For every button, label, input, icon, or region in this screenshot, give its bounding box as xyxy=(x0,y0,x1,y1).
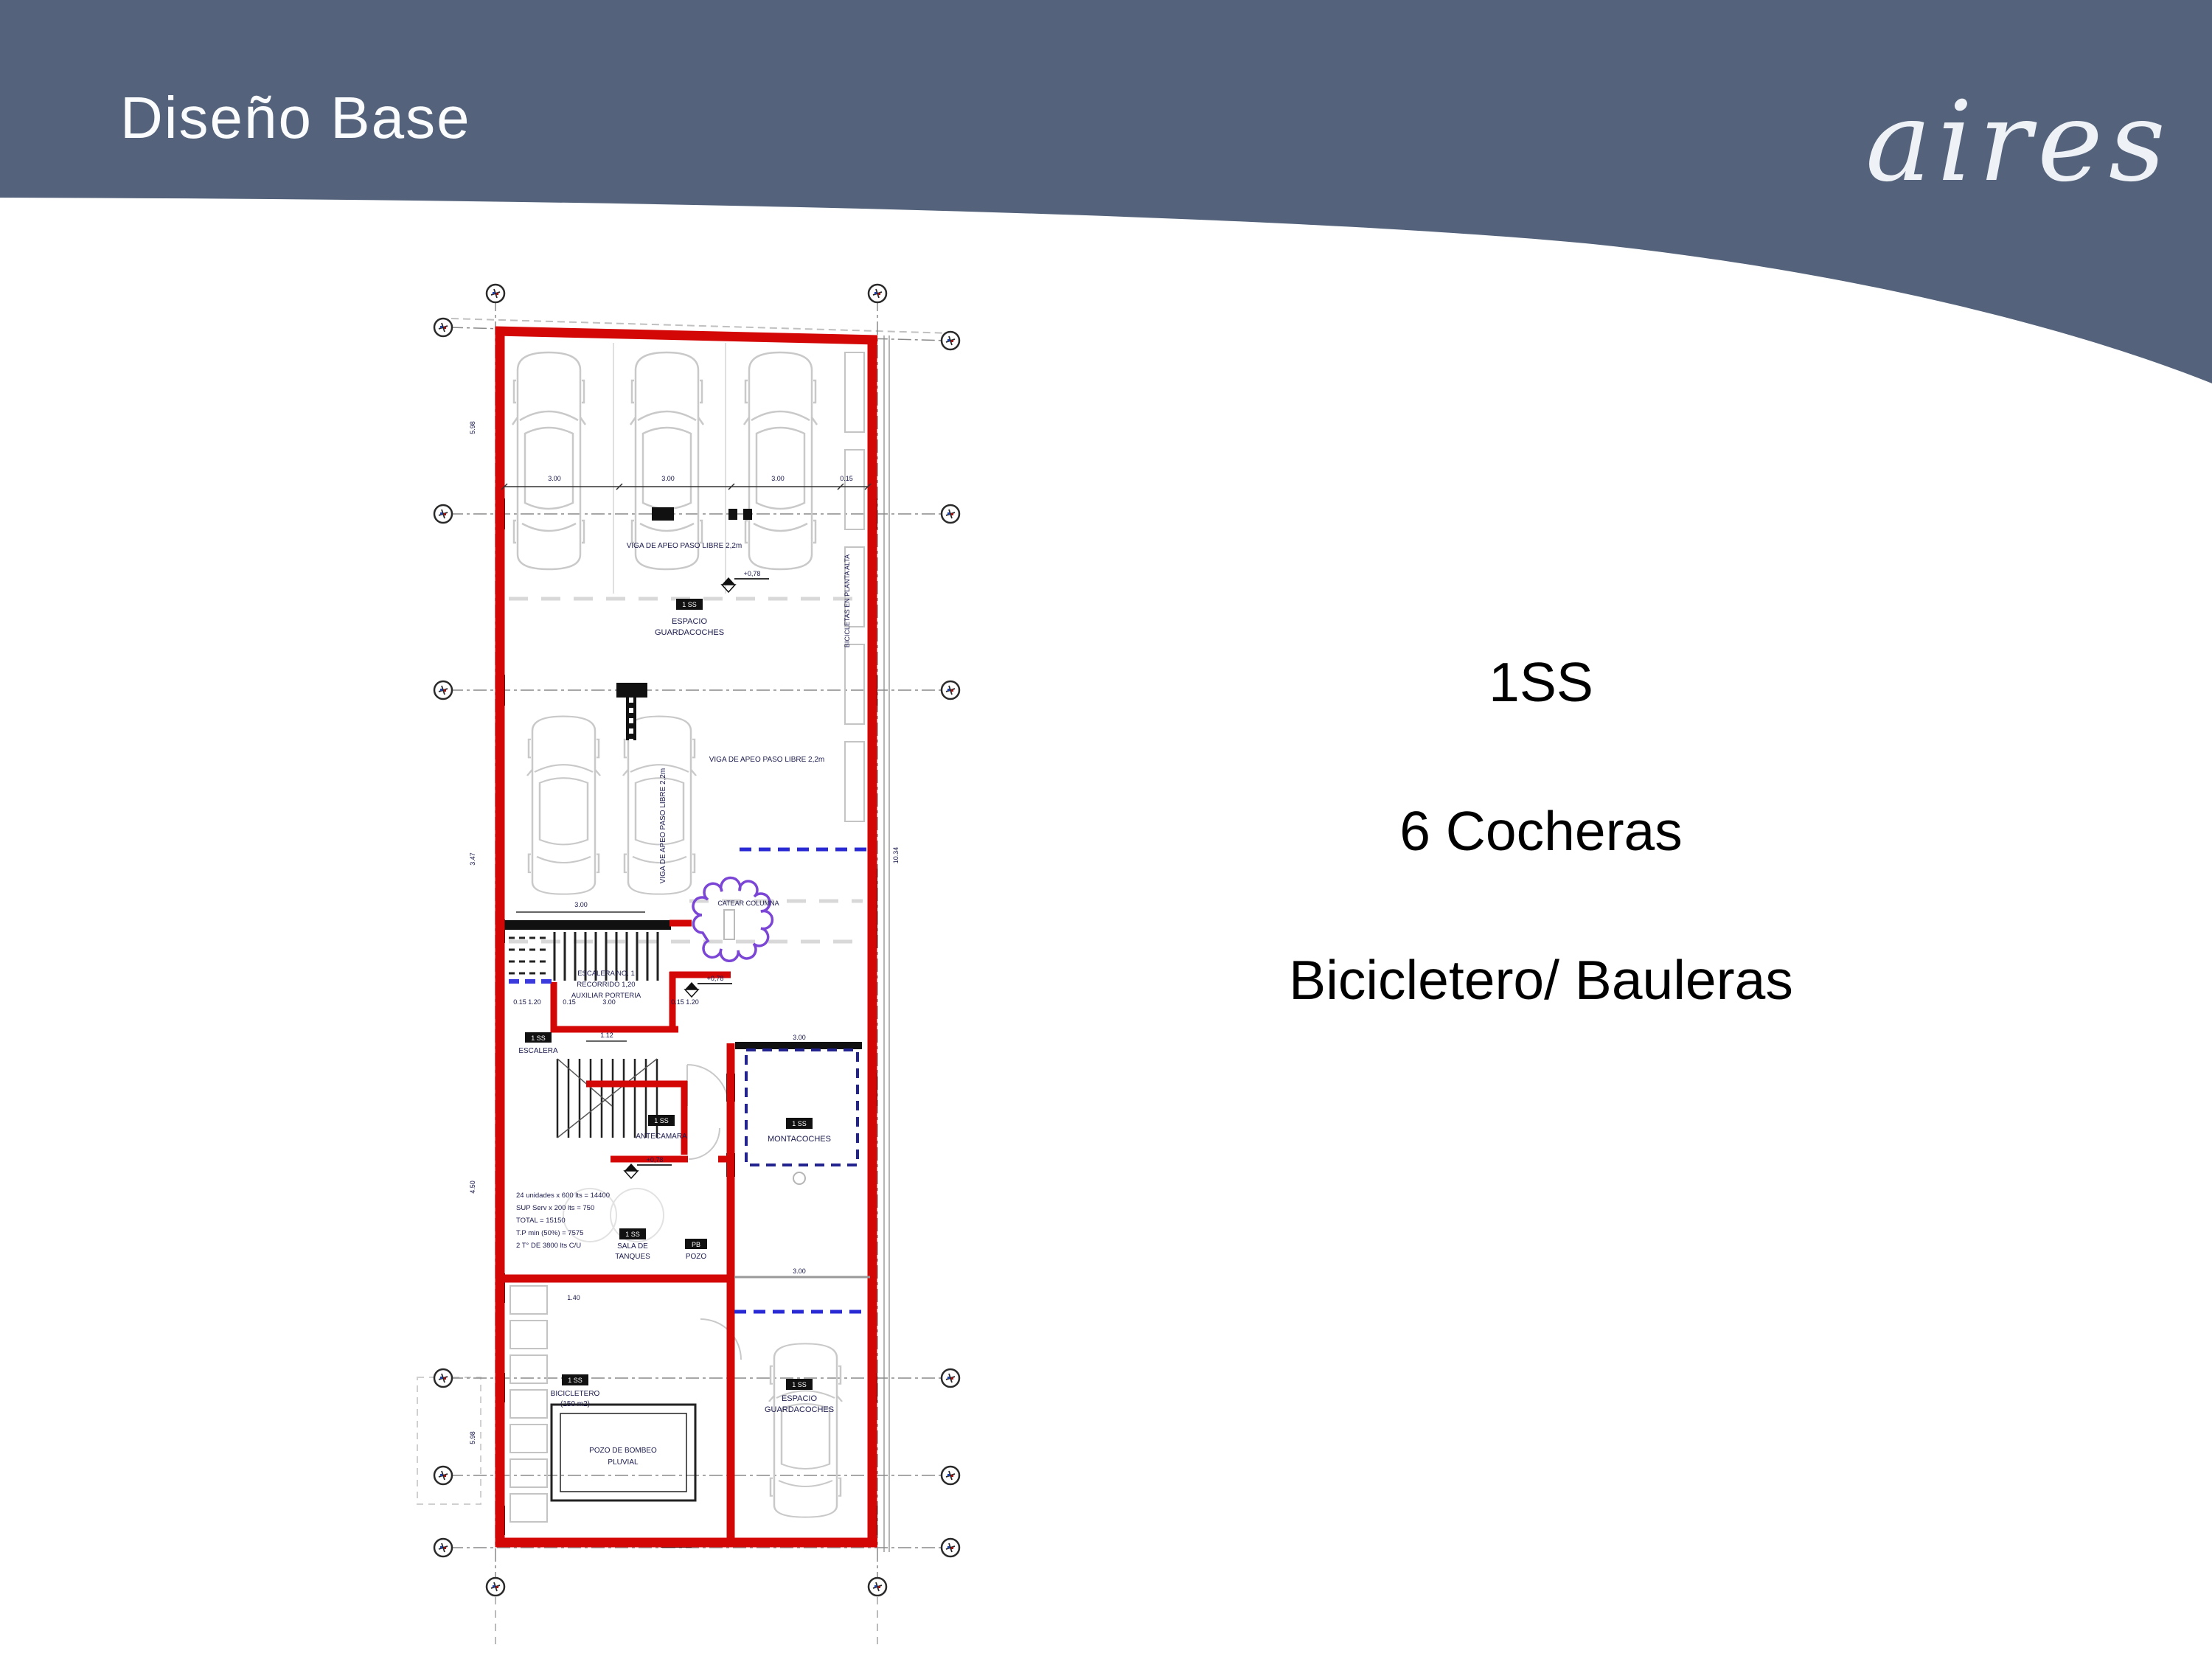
svg-text:ESPACIO: ESPACIO xyxy=(672,617,708,626)
svg-text:+0,78: +0,78 xyxy=(647,1156,664,1164)
svg-text:+0,78: +0,78 xyxy=(744,570,761,577)
svg-text:3.47: 3.47 xyxy=(469,852,476,866)
svg-text:5.98: 5.98 xyxy=(469,421,476,434)
svg-text:VIGA DE APEO PASO LIBRE 2,2m: VIGA DE APEO PASO LIBRE 2,2m xyxy=(659,768,667,884)
svg-text:AUXILIAR PORTERIA: AUXILIAR PORTERIA xyxy=(571,992,641,1000)
floor-plan: 3.00 3.00 3.00 0.15 3.00 0.15 1.20 0.15 … xyxy=(409,271,1051,1658)
svg-text:TOTAL = 15150: TOTAL = 15150 xyxy=(516,1217,566,1225)
svg-text:1 SS: 1 SS xyxy=(568,1377,582,1384)
svg-text:ESCALERA NO. 1: ESCALERA NO. 1 xyxy=(577,970,635,978)
svg-text:1 SS: 1 SS xyxy=(654,1117,669,1124)
parking-lane-marks xyxy=(509,343,863,942)
svg-text:10.34: 10.34 xyxy=(892,847,900,864)
summary-level: 1SS xyxy=(1217,649,1865,715)
svg-text:5.98: 5.98 xyxy=(469,1431,476,1444)
svg-text:3.00: 3.00 xyxy=(793,1267,806,1275)
svg-text:3.00: 3.00 xyxy=(548,475,561,482)
brand-logo: aires xyxy=(1865,87,2146,198)
svg-text:1 SS: 1 SS xyxy=(531,1034,546,1042)
svg-text:SUP Serv x 200 lts = 750: SUP Serv x 200 lts = 750 xyxy=(516,1204,594,1212)
svg-text:1.40: 1.40 xyxy=(567,1294,580,1301)
svg-text:3.00: 3.00 xyxy=(771,475,785,482)
svg-text:GUARDACOCHES: GUARDACOCHES xyxy=(765,1405,834,1414)
svg-text:BICICLETAS EN PLANTA ALTA: BICICLETAS EN PLANTA ALTA xyxy=(844,554,851,647)
svg-text:0.15 1.20: 0.15 1.20 xyxy=(671,998,699,1006)
summary-panel: 1SS 6 Cocheras Bicicletero/ Bauleras xyxy=(1217,649,1865,1013)
svg-text:24 unidades x 600 lts = 14400: 24 unidades x 600 lts = 14400 xyxy=(516,1192,610,1200)
svg-text:PB: PB xyxy=(692,1241,700,1248)
svg-text:ESCALERA: ESCALERA xyxy=(518,1047,558,1055)
svg-text:VIGA DE APEO PASO LIBRE 2,2m: VIGA DE APEO PASO LIBRE 2,2m xyxy=(627,542,742,550)
svg-text:(150 m2): (150 m2) xyxy=(560,1400,590,1408)
svg-text:GUARDACOCHES: GUARDACOCHES xyxy=(655,628,724,637)
svg-text:1 SS: 1 SS xyxy=(792,1120,807,1127)
svg-text:3.00: 3.00 xyxy=(661,475,675,482)
svg-text:VIGA DE APEO PASO LIBRE 2,2m: VIGA DE APEO PASO LIBRE 2,2m xyxy=(709,756,825,764)
red-walls xyxy=(495,327,877,1547)
svg-text:POZO DE BOMBEO: POZO DE BOMBEO xyxy=(589,1447,657,1455)
svg-text:ESPACIO: ESPACIO xyxy=(782,1394,818,1403)
svg-text:2 T° DE 3800 lts C/U: 2 T° DE 3800 lts C/U xyxy=(516,1242,581,1250)
svg-text:3.00: 3.00 xyxy=(574,901,588,908)
svg-text:SALA DE: SALA DE xyxy=(617,1242,648,1251)
svg-text:BICICLETERO: BICICLETERO xyxy=(551,1390,600,1398)
summary-cocheras: 6 Cocheras xyxy=(1217,798,1865,864)
svg-text:CATEAR COLUMNA: CATEAR COLUMNA xyxy=(717,900,779,907)
svg-text:+0,78: +0,78 xyxy=(707,975,724,982)
svg-text:ANTECAMARA: ANTECAMARA xyxy=(636,1133,687,1141)
svg-text:0.15 1.20: 0.15 1.20 xyxy=(513,998,541,1006)
cars xyxy=(512,352,842,1517)
svg-text:RECORRIDO 1,20: RECORRIDO 1,20 xyxy=(577,981,635,989)
summary-bicicletero: Bicicletero/ Bauleras xyxy=(1217,947,1865,1013)
svg-text:4.50: 4.50 xyxy=(469,1180,476,1194)
svg-text:3.00: 3.00 xyxy=(793,1034,806,1041)
svg-text:1 SS: 1 SS xyxy=(625,1231,640,1238)
svg-text:0.15: 0.15 xyxy=(840,475,853,482)
dimensions: 3.00 3.00 3.00 0.15 3.00 0.15 1.20 0.15 … xyxy=(469,421,900,1444)
svg-text:1 SS: 1 SS xyxy=(792,1381,807,1388)
svg-text:PLUVIAL: PLUVIAL xyxy=(608,1458,639,1467)
svg-text:T.P min (50%) = 7575: T.P min (50%) = 7575 xyxy=(516,1229,583,1237)
revision-cloud xyxy=(693,878,772,961)
svg-text:POZO: POZO xyxy=(686,1253,707,1261)
svg-text:TANQUES: TANQUES xyxy=(615,1253,650,1261)
svg-text:MONTACOCHES: MONTACOCHES xyxy=(768,1135,831,1144)
svg-text:1.12: 1.12 xyxy=(600,1032,613,1039)
header-band xyxy=(0,0,2212,413)
page-title: Diseño Base xyxy=(120,87,471,149)
svg-text:1 SS: 1 SS xyxy=(682,601,697,608)
